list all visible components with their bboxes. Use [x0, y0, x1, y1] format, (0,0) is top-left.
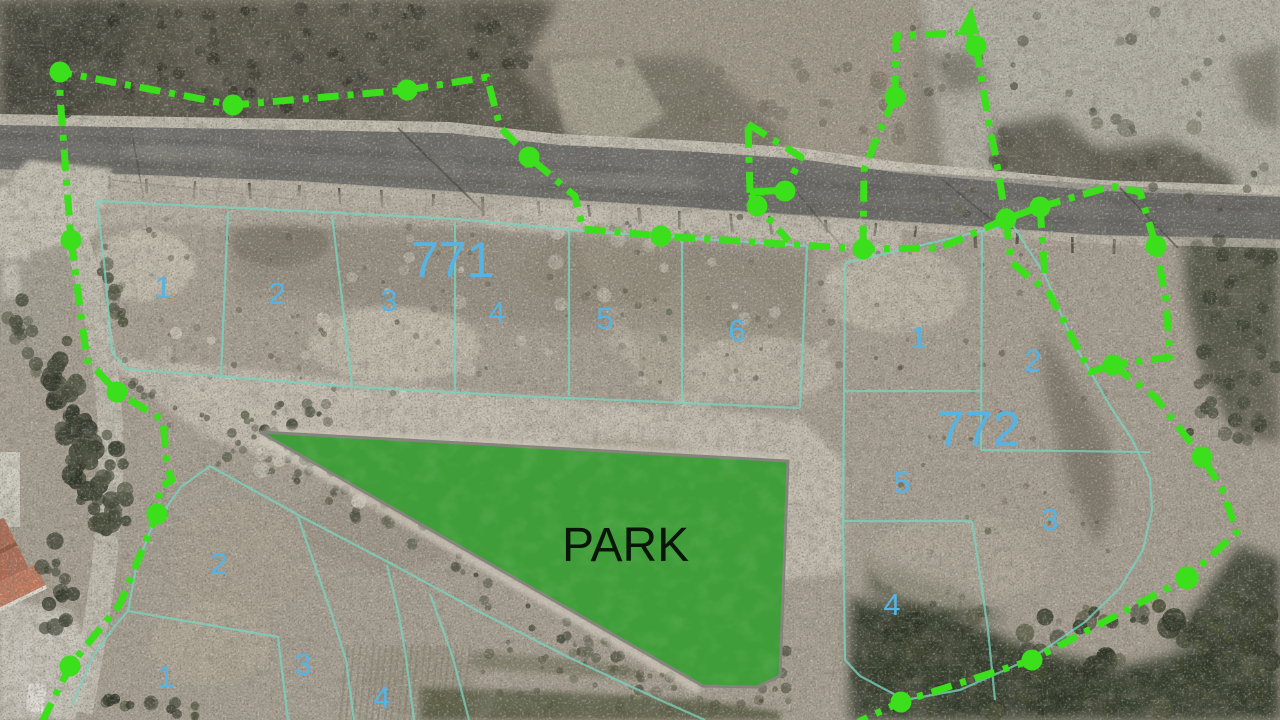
- svg-text:1: 1: [910, 320, 927, 355]
- svg-text:771: 771: [411, 232, 494, 288]
- svg-text:2: 2: [1024, 343, 1041, 378]
- svg-text:4: 4: [488, 295, 505, 330]
- svg-text:PARK: PARK: [562, 519, 689, 572]
- svg-text:1: 1: [154, 270, 171, 305]
- svg-text:4: 4: [373, 680, 390, 715]
- svg-text:3: 3: [294, 647, 311, 682]
- svg-text:5: 5: [596, 301, 613, 336]
- svg-text:5: 5: [893, 465, 910, 500]
- svg-text:2: 2: [268, 276, 285, 311]
- svg-text:3: 3: [380, 283, 397, 318]
- svg-text:772: 772: [937, 401, 1020, 457]
- svg-text:1: 1: [157, 659, 174, 694]
- svg-text:6: 6: [728, 313, 745, 348]
- svg-text:3: 3: [1041, 502, 1058, 537]
- svg-text:4: 4: [883, 587, 900, 622]
- svg-text:2: 2: [210, 546, 227, 581]
